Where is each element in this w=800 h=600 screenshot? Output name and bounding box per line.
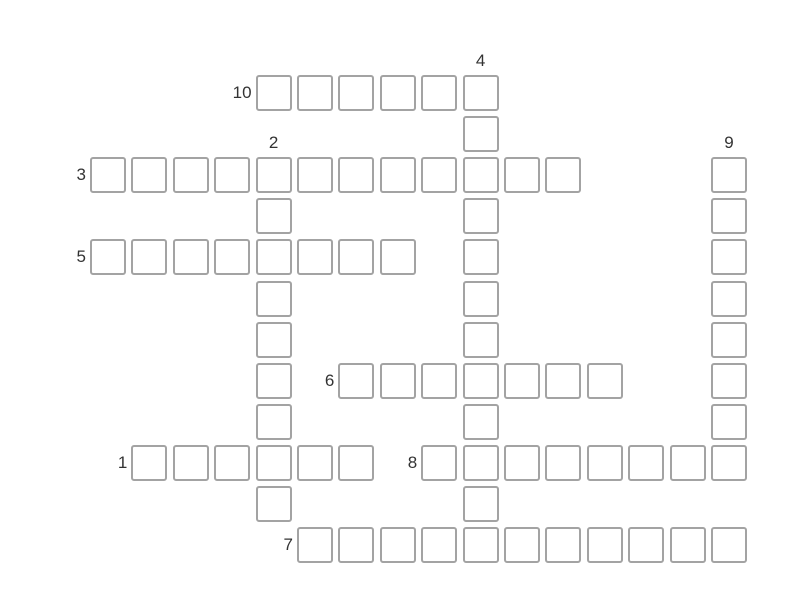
crossword-cell-r7-c7[interactable] — [380, 363, 416, 399]
crossword-cell-r7-c6[interactable] — [338, 363, 374, 399]
crossword-cell-r3-c9[interactable] — [463, 198, 499, 234]
crossword-cell-r4-c5[interactable] — [297, 239, 333, 275]
crossword-cell-r4-c3[interactable] — [214, 239, 250, 275]
crossword-cell-r4-c7[interactable] — [380, 239, 416, 275]
crossword-cell-r4-c9[interactable] — [463, 239, 499, 275]
crossword-cell-r2-c8[interactable] — [421, 157, 457, 193]
crossword-cell-r9-c10[interactable] — [504, 445, 540, 481]
crossword-cell-r11-c9[interactable] — [463, 527, 499, 563]
crossword-cell-r0-c6[interactable] — [338, 75, 374, 111]
crossword-cell-r11-c14[interactable] — [670, 527, 706, 563]
clue-number-1-across: 1 — [85, 445, 127, 481]
crossword-cell-r7-c4[interactable] — [256, 363, 292, 399]
crossword-cell-r3-c4[interactable] — [256, 198, 292, 234]
crossword-cell-r0-c8[interactable] — [421, 75, 457, 111]
crossword-cell-r4-c2[interactable] — [173, 239, 209, 275]
crossword-cell-r10-c4[interactable] — [256, 486, 292, 522]
crossword-cell-r3-c15[interactable] — [711, 198, 747, 234]
crossword-cell-r9-c11[interactable] — [545, 445, 581, 481]
crossword-cell-r8-c9[interactable] — [463, 404, 499, 440]
crossword-cell-r2-c5[interactable] — [297, 157, 333, 193]
clue-number-10-across: 10 — [210, 75, 252, 111]
crossword-cell-r9-c6[interactable] — [338, 445, 374, 481]
crossword-cell-r7-c10[interactable] — [504, 363, 540, 399]
crossword-cell-r8-c4[interactable] — [256, 404, 292, 440]
crossword-cell-r6-c4[interactable] — [256, 322, 292, 358]
crossword-cell-r11-c12[interactable] — [587, 527, 623, 563]
crossword-cell-r2-c10[interactable] — [504, 157, 540, 193]
crossword-cell-r2-c15[interactable] — [711, 157, 747, 193]
crossword-cell-r10-c9[interactable] — [463, 486, 499, 522]
crossword-cell-r9-c5[interactable] — [297, 445, 333, 481]
crossword-cell-r2-c6[interactable] — [338, 157, 374, 193]
crossword-cell-r9-c9[interactable] — [463, 445, 499, 481]
crossword-cell-r11-c10[interactable] — [504, 527, 540, 563]
crossword-cell-r7-c9[interactable] — [463, 363, 499, 399]
crossword-cell-r9-c12[interactable] — [587, 445, 623, 481]
crossword-cell-r0-c7[interactable] — [380, 75, 416, 111]
crossword-cell-r9-c3[interactable] — [214, 445, 250, 481]
crossword-cell-r9-c15[interactable] — [711, 445, 747, 481]
crossword-cell-r7-c12[interactable] — [587, 363, 623, 399]
crossword-cell-r5-c4[interactable] — [256, 281, 292, 317]
crossword-cell-r4-c15[interactable] — [711, 239, 747, 275]
crossword-cell-r4-c6[interactable] — [338, 239, 374, 275]
crossword-cell-r5-c15[interactable] — [711, 281, 747, 317]
crossword-cell-r11-c11[interactable] — [545, 527, 581, 563]
crossword-cell-r11-c15[interactable] — [711, 527, 747, 563]
crossword-cell-r6-c15[interactable] — [711, 322, 747, 358]
crossword-cell-r11-c8[interactable] — [421, 527, 457, 563]
crossword-cell-r2-c7[interactable] — [380, 157, 416, 193]
crossword-cell-r11-c7[interactable] — [380, 527, 416, 563]
crossword-cell-r2-c11[interactable] — [545, 157, 581, 193]
crossword-cell-r9-c13[interactable] — [628, 445, 664, 481]
clue-number-5-across: 5 — [44, 239, 86, 275]
crossword-cell-r0-c9[interactable] — [463, 75, 499, 111]
crossword-cell-r7-c8[interactable] — [421, 363, 457, 399]
crossword-cell-r0-c4[interactable] — [256, 75, 292, 111]
crossword-cell-r9-c4[interactable] — [256, 445, 292, 481]
crossword-cell-r2-c4[interactable] — [256, 157, 292, 193]
clue-number-9-down: 9 — [711, 131, 747, 155]
crossword-cell-r11-c6[interactable] — [338, 527, 374, 563]
crossword-cell-r6-c9[interactable] — [463, 322, 499, 358]
crossword-cell-r8-c15[interactable] — [711, 404, 747, 440]
crossword-board: 12345678910 — [0, 0, 800, 600]
crossword-cell-r9-c1[interactable] — [131, 445, 167, 481]
crossword-cell-r9-c14[interactable] — [670, 445, 706, 481]
crossword-cell-r0-c5[interactable] — [297, 75, 333, 111]
crossword-cell-r11-c5[interactable] — [297, 527, 333, 563]
crossword-cell-r2-c3[interactable] — [214, 157, 250, 193]
clue-number-8-across: 8 — [375, 445, 417, 481]
clue-number-7-across: 7 — [251, 527, 293, 563]
crossword-cell-r4-c4[interactable] — [256, 239, 292, 275]
crossword-cell-r7-c15[interactable] — [711, 363, 747, 399]
clue-number-6-across: 6 — [292, 363, 334, 399]
crossword-cell-r5-c9[interactable] — [463, 281, 499, 317]
crossword-cell-r4-c0[interactable] — [90, 239, 126, 275]
crossword-cell-r1-c9[interactable] — [463, 116, 499, 152]
clue-number-2-down: 2 — [256, 131, 292, 155]
clue-number-3-across: 3 — [44, 157, 86, 193]
crossword-cell-r2-c9[interactable] — [463, 157, 499, 193]
crossword-cell-r9-c8[interactable] — [421, 445, 457, 481]
crossword-cell-r2-c2[interactable] — [173, 157, 209, 193]
crossword-cell-r2-c1[interactable] — [131, 157, 167, 193]
crossword-cell-r7-c11[interactable] — [545, 363, 581, 399]
crossword-cell-r2-c0[interactable] — [90, 157, 126, 193]
clue-number-4-down: 4 — [463, 49, 499, 73]
crossword-cell-r9-c2[interactable] — [173, 445, 209, 481]
crossword-cell-r4-c1[interactable] — [131, 239, 167, 275]
crossword-cell-r11-c13[interactable] — [628, 527, 664, 563]
